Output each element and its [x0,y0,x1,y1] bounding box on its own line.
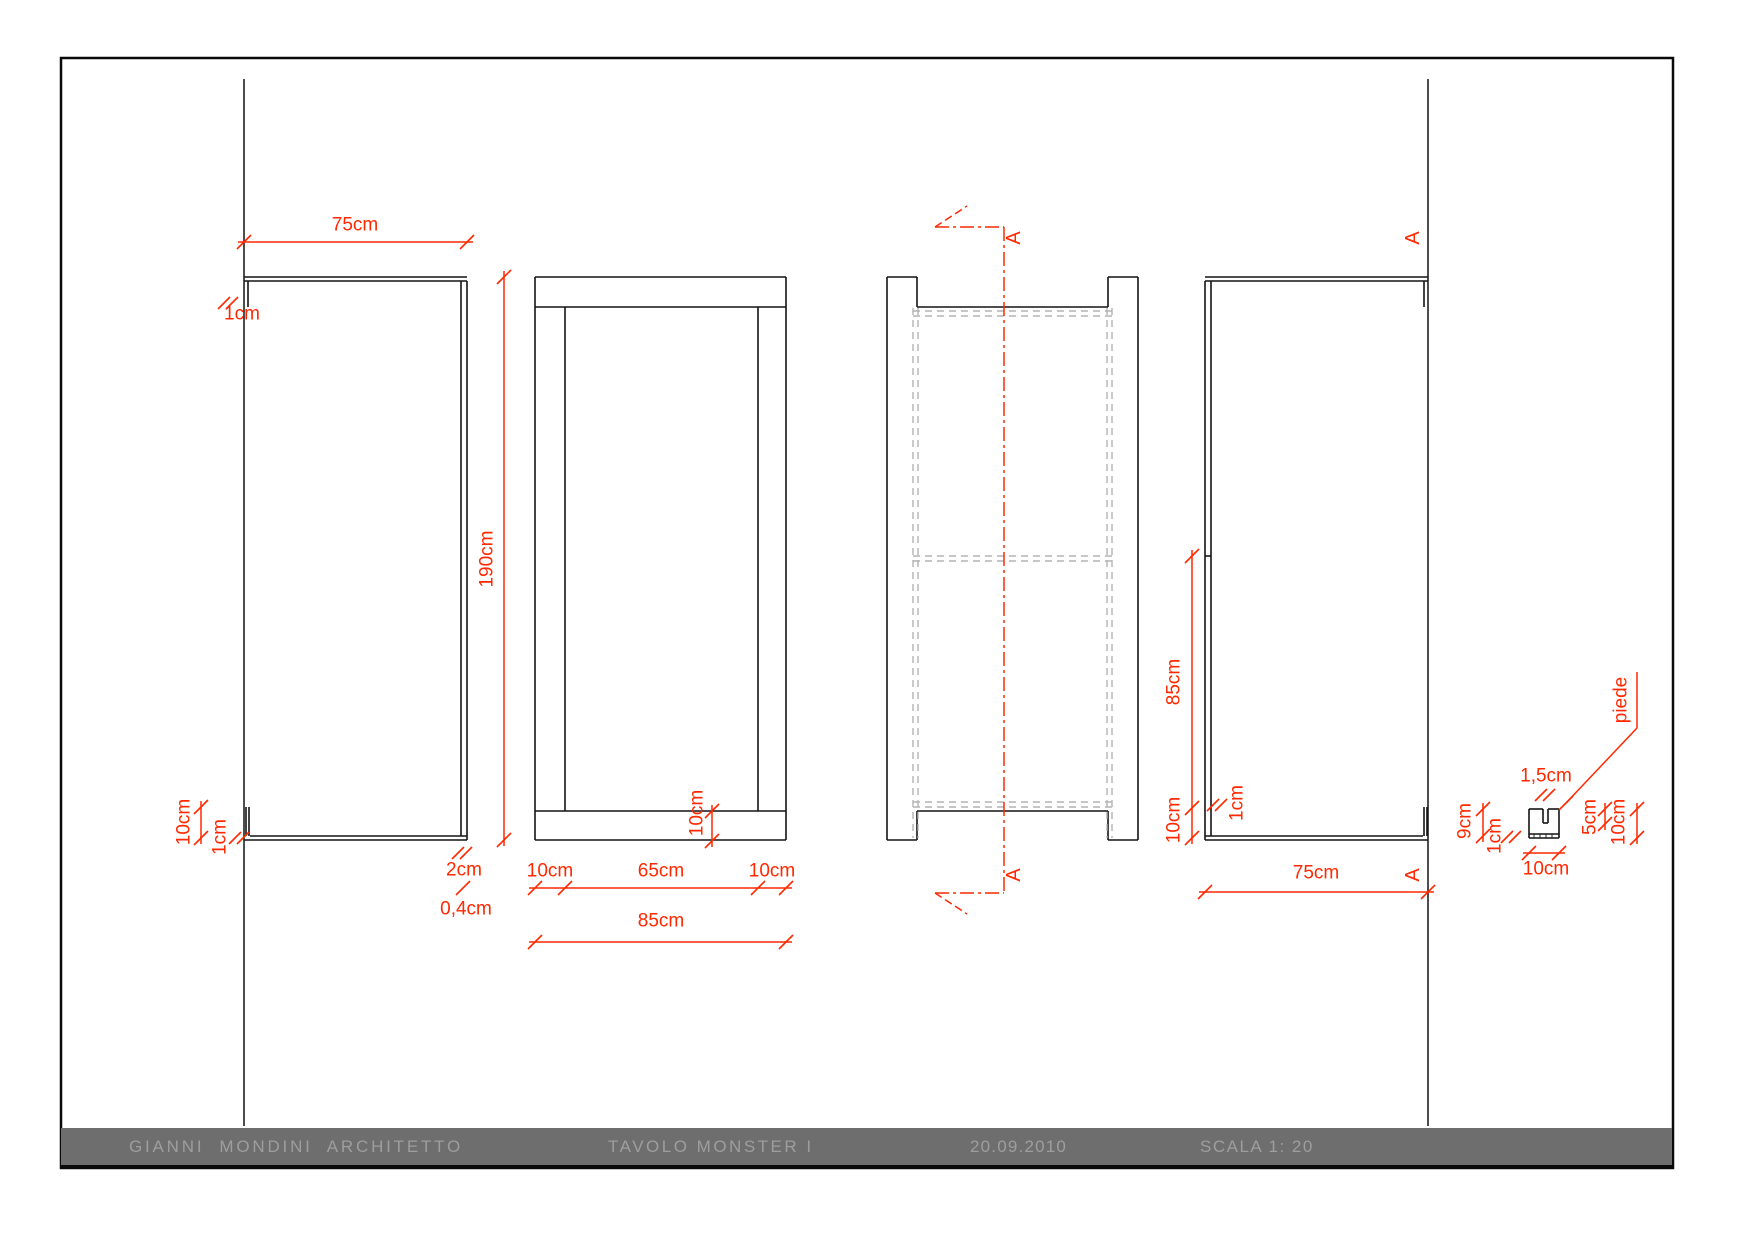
title-bar: GIANNI MONDINI ARCHITETTO TAVOLO MONSTER… [61,1128,1672,1169]
sheet-frame [61,58,1673,1168]
reference-lines [244,79,1428,1126]
titlebar-project-title: TAVOLO MONSTER I [608,1137,814,1157]
dim-front-foot-width: 1cm [211,819,230,855]
drawing-sheet: GIANNI MONDINI ARCHITETTO TAVOLO MONSTER… [0,0,1754,1241]
dim-front-top-reveal: 1cm [224,305,260,324]
dim-foot-total-height: 10cm [1610,799,1629,845]
dim-back-foot-width: 1cm [1228,785,1247,821]
titlebar-scale: SCALA 1: 20 [1200,1137,1314,1157]
drawing-canvas [0,0,1754,1241]
titlebar-architect: GIANNI MONDINI ARCHITETTO [129,1137,463,1157]
dimension-ticks [194,235,1644,949]
view-section-outline [887,277,1138,840]
foot-detail-title: piede [1612,677,1631,724]
dim-foot-notch-depth: 5cm [1581,799,1600,835]
dim-foot-notch-width: 1,5cm [1520,767,1572,786]
dim-back-width: 75cm [1293,864,1339,883]
titlebar-date: 20.09.2010 [970,1137,1067,1157]
dim-side-slab-thickness: 10cm [688,790,707,836]
view-side-outline [535,277,786,840]
dim-back-inner-height: 85cm [1165,659,1184,705]
dim-side-bottom-total: 85cm [638,912,684,931]
dim-foot-body-height: 9cm [1456,803,1475,839]
dim-foot-total-width: 10cm [1523,860,1569,879]
view-front-outline [244,277,467,840]
foot-detail-outline [1529,809,1559,838]
view-back-outline [1205,277,1428,840]
section-marker-top: A [1004,231,1024,244]
back-marker-top: A [1403,231,1423,244]
dim-side-height: 190cm [478,530,497,587]
dim-front-foot-height: 10cm [175,799,194,845]
section-marker-bottom: A [1004,868,1024,881]
dim-side-bottom-center: 65cm [638,862,684,881]
view-section-hidden-lines [913,308,1112,838]
dim-side-bottom-right: 10cm [749,862,795,881]
section-line-AA [935,206,1004,914]
dimension-lines [201,242,1637,942]
back-marker-bottom: A [1403,868,1423,881]
dim-back-slab-thickness: 10cm [1165,797,1184,843]
dim-front-edge-thickness: 2cm [446,861,482,880]
dim-front-edge-gap: 0,4cm [440,900,492,919]
dim-foot-plate-thickness: 1cm [1486,818,1505,854]
dim-front-width: 75cm [332,216,378,235]
dim-side-bottom-left: 10cm [527,862,573,881]
